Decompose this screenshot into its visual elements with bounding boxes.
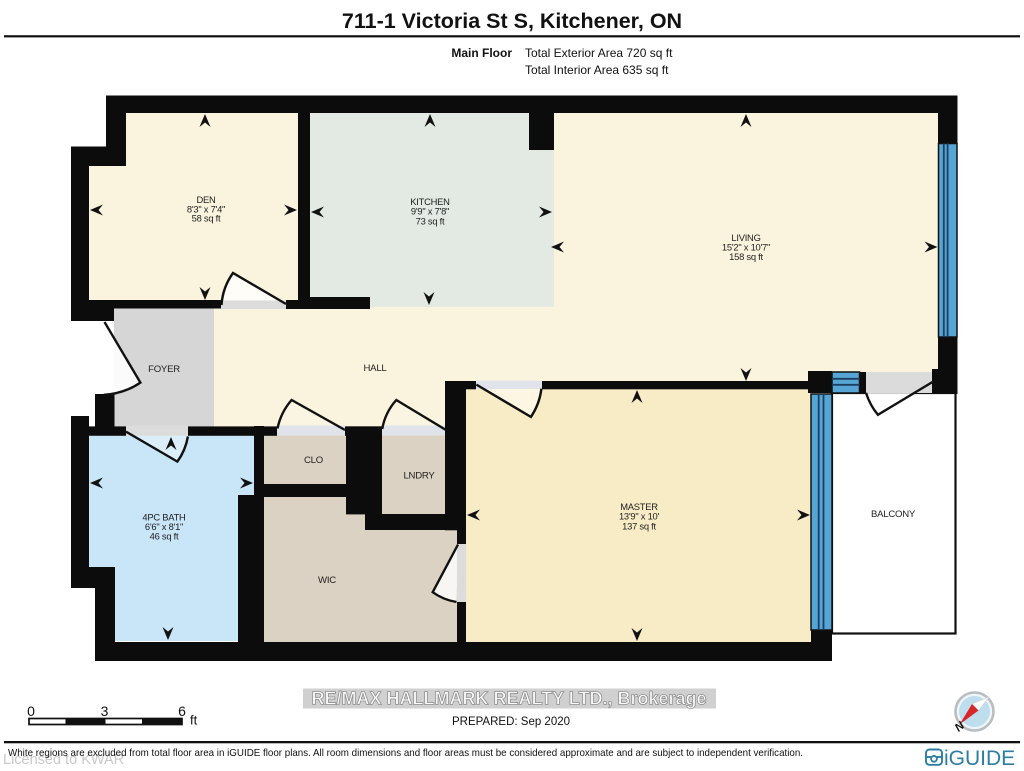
svg-text:46 sq ft: 46 sq ft (150, 531, 179, 542)
svg-text:FOYER: FOYER (148, 364, 180, 375)
svg-text:0: 0 (27, 703, 35, 719)
svg-text:BALCONY: BALCONY (871, 509, 916, 520)
svg-text:711-1 Victoria St S, Kitchener: 711-1 Victoria St S, Kitchener, ON (342, 9, 682, 33)
svg-text:WIC: WIC (318, 575, 336, 586)
svg-text:RE/MAX HALLMARK REALTY LTD., B: RE/MAX HALLMARK REALTY LTD., Brokerage (311, 689, 706, 709)
svg-text:CLO: CLO (304, 455, 323, 466)
svg-text:PREPARED: Sep 2020: PREPARED: Sep 2020 (452, 716, 570, 728)
svg-text:Total Exterior Area 720 sq ft: Total Exterior Area 720 sq ft (525, 46, 673, 60)
svg-text:ft: ft (190, 713, 198, 728)
svg-text:LNDRY: LNDRY (403, 471, 435, 482)
svg-text:Main Floor: Main Floor (451, 46, 512, 60)
svg-text:iGUIDE: iGUIDE (944, 747, 1015, 766)
svg-text:6: 6 (178, 703, 186, 719)
svg-text:3: 3 (101, 703, 109, 719)
svg-text:158 sq ft: 158 sq ft (729, 251, 763, 262)
svg-text:Total Interior Area 635 sq ft: Total Interior Area 635 sq ft (525, 63, 669, 77)
svg-text:73 sq ft: 73 sq ft (416, 215, 445, 226)
svg-text:58 sq ft: 58 sq ft (192, 213, 221, 224)
svg-text:HALL: HALL (364, 363, 388, 374)
svg-text:137 sq ft: 137 sq ft (622, 520, 656, 531)
svg-text:White regions are excluded fro: White regions are excluded from total fl… (8, 748, 803, 759)
